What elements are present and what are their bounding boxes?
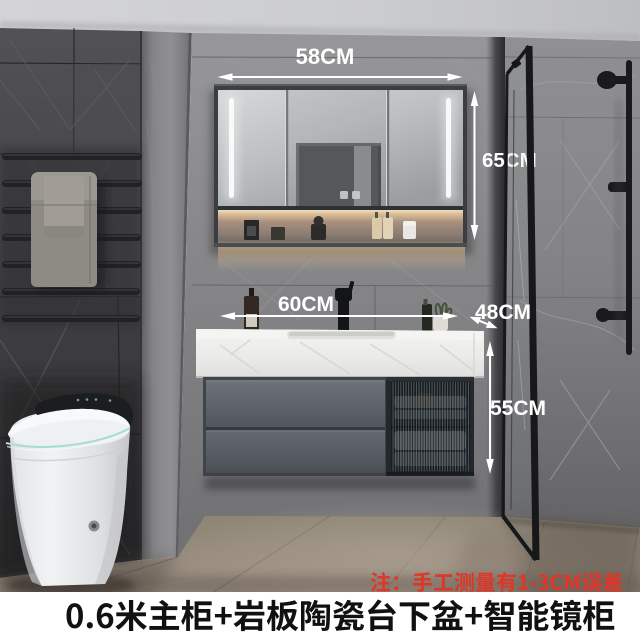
svg-text:60CM: 60CM bbox=[278, 293, 334, 316]
svg-text:58CM: 58CM bbox=[296, 44, 355, 69]
svg-text:55CM: 55CM bbox=[490, 397, 546, 420]
svg-text:48CM: 48CM bbox=[475, 301, 531, 324]
